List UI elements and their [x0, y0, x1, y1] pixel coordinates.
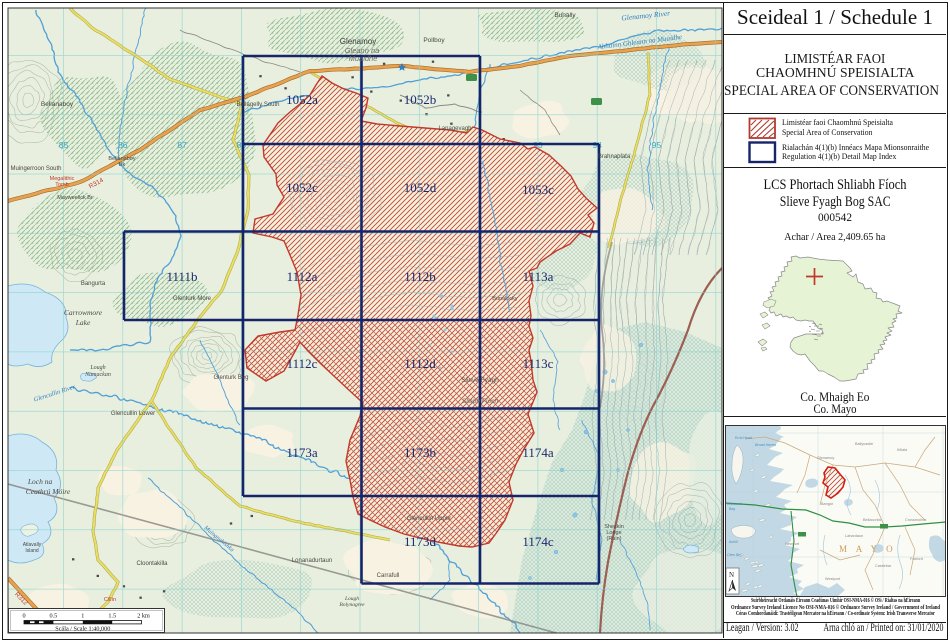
svg-text:Ceathrú Móire: Ceathrú Móire: [26, 487, 71, 496]
svg-text:Bunalocky: Bunalocky: [492, 296, 518, 302]
svg-text:Lanagevagh: Lanagevagh: [438, 126, 471, 132]
svg-text:Mayweelick Br: Mayweelick Br: [57, 195, 93, 201]
svg-text:1112a: 1112a: [287, 269, 318, 284]
svg-text:Muingerroon South: Muingerroon South: [10, 166, 61, 172]
svg-text:0.5: 0.5: [49, 612, 57, 619]
svg-text:Glenturk More: Glenturk More: [173, 296, 212, 302]
svg-text:Cillín: Cillín: [104, 597, 116, 603]
svg-text:1052c: 1052c: [286, 180, 318, 195]
svg-text:Glenamoy: Glenamoy: [340, 37, 376, 46]
svg-text:Killala: Killala: [897, 448, 908, 452]
svg-text:1113c: 1113c: [523, 356, 554, 371]
svg-text:1174a: 1174a: [522, 445, 554, 460]
svg-text:Loch na: Loch na: [27, 477, 53, 486]
svg-text:1111b: 1111b: [166, 269, 197, 284]
svg-text:1113a: 1113a: [523, 269, 554, 284]
svg-text:Bolynagree: Bolynagree: [339, 602, 365, 608]
svg-text:Westport: Westport: [825, 577, 841, 581]
svg-text:Island: Island: [25, 548, 39, 554]
svg-text:Foxford: Foxford: [910, 557, 923, 561]
svg-text:1052a: 1052a: [286, 92, 318, 107]
svg-text:1112c: 1112c: [287, 356, 318, 371]
svg-text:Muaidhe: Muaidhe: [349, 54, 378, 63]
svg-text:Blacksod: Blacksod: [727, 502, 742, 506]
svg-text:1174c: 1174c: [522, 534, 554, 549]
svg-text:Sliabh Fíoch: Sliabh Fíoch: [462, 398, 499, 405]
svg-text:M A Y O: M A Y O: [839, 544, 896, 554]
svg-text:Ballycastle: Ballycastle: [855, 442, 873, 446]
svg-text:N: N: [729, 571, 734, 579]
svg-text:Lahardaun: Lahardaun: [845, 534, 863, 538]
svg-text:1052d: 1052d: [404, 180, 437, 195]
svg-text:Lonanadurtaun: Lonanadurtaun: [292, 558, 332, 564]
svg-text:Achill: Achill: [729, 540, 738, 544]
svg-text:Bellacorick: Bellacorick: [863, 518, 881, 522]
svg-text:Scála / Scale 1:40,000: Scála / Scale 1:40,000: [55, 625, 110, 632]
svg-text:Glencullin Lower: Glencullin Lower: [111, 411, 155, 417]
svg-text:1053c: 1053c: [522, 182, 554, 197]
svg-text:1.5: 1.5: [108, 612, 116, 619]
svg-text:Bunally: Bunally: [554, 12, 576, 19]
svg-text:Cloontakilla: Cloontakilla: [136, 561, 168, 567]
svg-text:Tomb: Tomb: [55, 182, 68, 188]
svg-text:Bay: Bay: [729, 507, 735, 511]
svg-text:Lough: Lough: [89, 365, 105, 371]
svg-text:Clew Bay: Clew Bay: [727, 553, 742, 557]
svg-text:Castlebar: Castlebar: [875, 564, 892, 568]
svg-text:1112d: 1112d: [404, 356, 436, 371]
svg-text:Slieve Fyagh: Slieve Fyagh: [461, 377, 499, 384]
svg-text:Namackan: Namackan: [84, 372, 111, 378]
svg-text:1052b: 1052b: [404, 92, 437, 107]
svg-text:Broad Haven: Broad Haven: [755, 443, 776, 447]
svg-text:1173b: 1173b: [404, 445, 436, 460]
svg-text:Pollboy: Pollboy: [423, 37, 445, 44]
svg-text:Glenturk Beg: Glenturk Beg: [213, 375, 248, 381]
svg-text:86: 86: [118, 140, 128, 150]
svg-text:Newport: Newport: [785, 542, 800, 546]
svg-text:Bellagelly South: Bellagelly South: [236, 102, 279, 108]
svg-text:Brahnaplata: Brahnaplata: [598, 154, 631, 160]
svg-text:Bangurta: Bangurta: [81, 281, 106, 287]
svg-text:87: 87: [177, 140, 187, 150]
svg-text:1112b: 1112b: [404, 269, 436, 284]
svg-text:Bk: Bk: [119, 162, 126, 168]
svg-text:Lake: Lake: [75, 318, 91, 327]
svg-text:(Ruin): (Ruin): [607, 536, 622, 542]
svg-text:2 km: 2 km: [137, 612, 150, 619]
svg-text:85: 85: [59, 140, 69, 150]
svg-text:Glencullin Upper: Glencullin Upper: [407, 516, 451, 522]
svg-text:Bellanaboy: Bellanaboy: [41, 101, 74, 108]
svg-text:Carrafull: Carrafull: [377, 573, 400, 579]
svg-text:0: 0: [22, 612, 25, 619]
svg-text:Erris Head: Erris Head: [735, 436, 752, 440]
svg-text:1173d: 1173d: [404, 534, 437, 549]
svg-text:Crossmolina: Crossmolina: [905, 518, 927, 522]
svg-text:Carrowmore: Carrowmore: [64, 308, 103, 317]
svg-text:Bangor: Bangor: [821, 502, 834, 506]
svg-text:95: 95: [652, 140, 662, 150]
svg-text:Glenamoy: Glenamoy: [817, 456, 834, 460]
svg-text:1173a: 1173a: [286, 445, 318, 460]
svg-text:1: 1: [81, 612, 84, 619]
